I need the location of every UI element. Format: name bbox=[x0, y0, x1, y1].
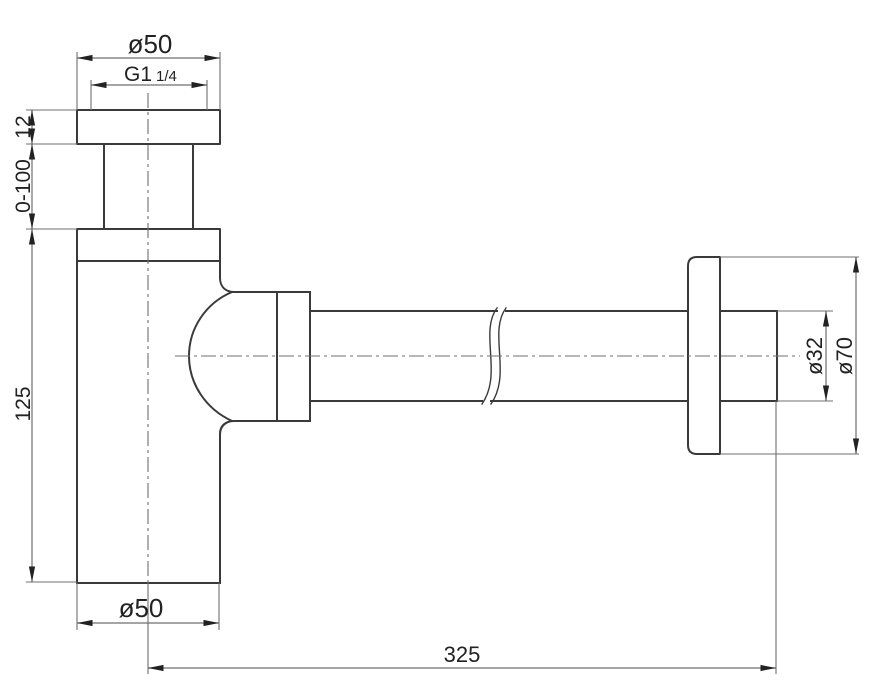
technical-drawing-bottle-trap: ø50 G1 1/4 12 0-100 125 ø50 325 ø32 ø70 bbox=[0, 0, 871, 698]
outlet-neck-top bbox=[220, 278, 310, 292]
dim-label-flange-diameter: ø50 bbox=[128, 29, 173, 59]
drawing-canvas: ø50 G1 1/4 12 0-100 125 ø50 325 ø32 ø70 bbox=[0, 0, 871, 698]
dim-label-wall-flange-diameter: ø70 bbox=[832, 337, 857, 375]
dim-label-thread: G1 bbox=[124, 63, 152, 86]
trap-body-outline bbox=[77, 261, 310, 583]
dim-label-tube-length: 0-100 bbox=[12, 159, 35, 213]
dim-label-pipe-diameter: ø32 bbox=[802, 337, 827, 375]
extension-lines bbox=[26, 52, 859, 674]
part-outline bbox=[77, 110, 777, 583]
dim-label-body-diameter: ø50 bbox=[119, 593, 164, 623]
outlet-neck-bottom bbox=[220, 421, 310, 434]
dimension-lines bbox=[32, 58, 856, 668]
dim-label-horizontal-length: 325 bbox=[444, 642, 481, 667]
dim-label-body-height: 125 bbox=[12, 386, 35, 421]
dimension-labels: ø50 G1 1/4 12 0-100 125 ø50 325 ø32 ø70 bbox=[12, 29, 857, 667]
dim-label-thread-fraction: 1/4 bbox=[156, 68, 177, 85]
dim-label-flange-thickness: 12 bbox=[12, 115, 35, 138]
